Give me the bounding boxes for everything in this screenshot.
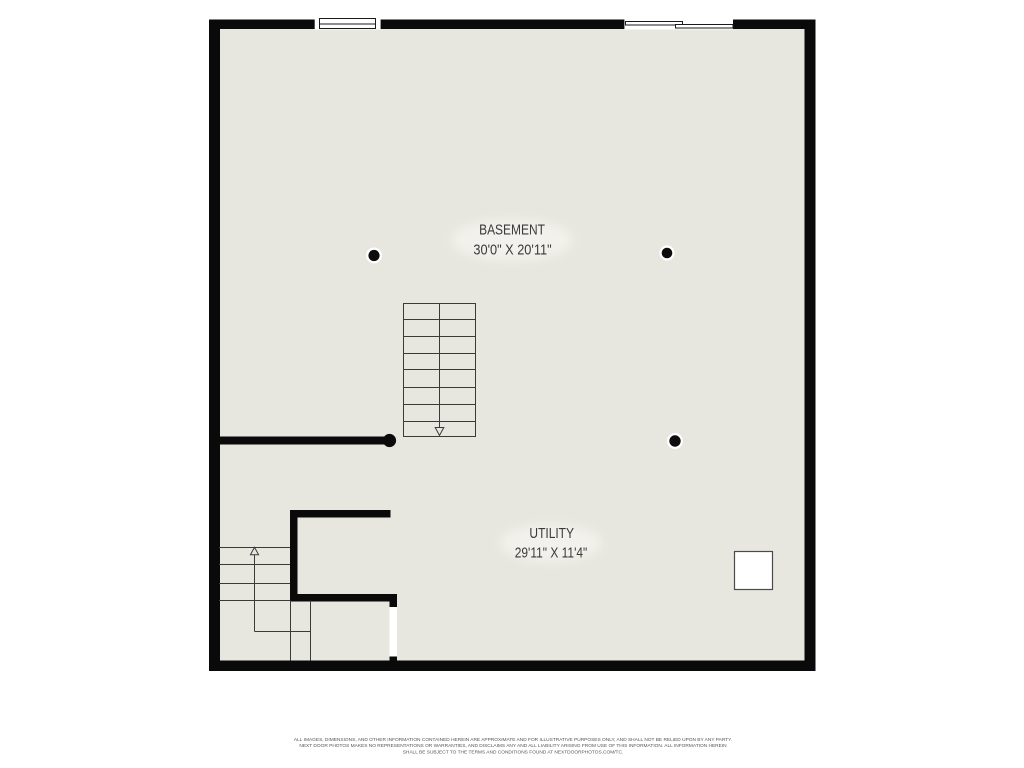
svg-text:BASEMENT: BASEMENT (479, 221, 545, 237)
svg-text:29'11" X 11'4": 29'11" X 11'4" (515, 544, 588, 560)
svg-text:NEXT DOOR PHOTOS MAKES NO REPR: NEXT DOOR PHOTOS MAKES NO REPRESENTATION… (299, 743, 727, 749)
svg-text:UTILITY: UTILITY (529, 525, 574, 541)
svg-text:ALL IMAGES, DIMENSIONS, AND OT: ALL IMAGES, DIMENSIONS, AND OTHER INFORM… (294, 737, 732, 743)
svg-text:SHALL BE SUBJECT TO THE TERMS: SHALL BE SUBJECT TO THE TERMS AND CONDIT… (403, 749, 624, 755)
svg-text:30'0" X 20'11": 30'0" X 20'11" (473, 240, 551, 257)
